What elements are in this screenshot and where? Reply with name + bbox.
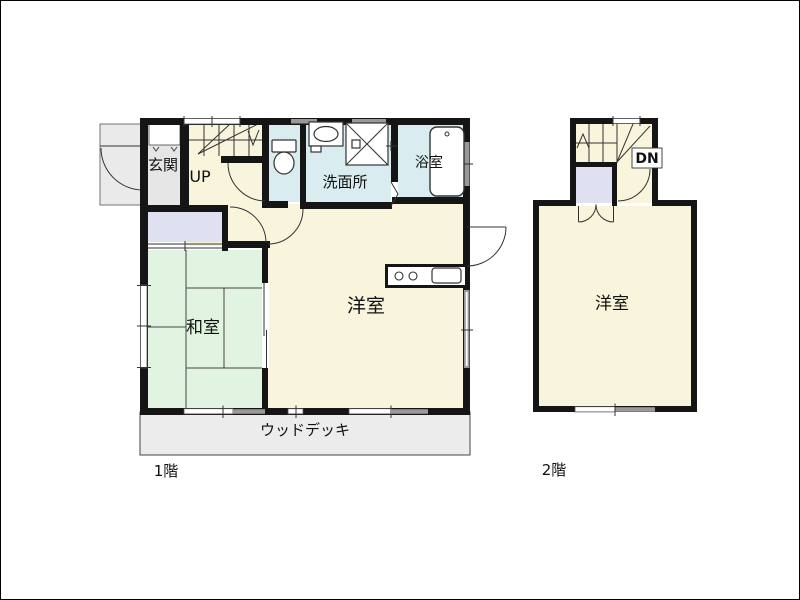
bathroom-label: 浴室 <box>415 154 443 171</box>
stairs-down-label: DN <box>635 151 658 167</box>
floor-plan-image: 玄関 UP 洗面所 浴室 和室 洋室 ウッドデッキ 1階 <box>0 0 800 600</box>
floor1-label: 1階 <box>154 462 179 480</box>
stove-burner <box>395 272 403 280</box>
floor1-plan: 玄関 UP 洗面所 浴室 和室 洋室 ウッドデッキ 1階 <box>100 116 506 480</box>
sliding-partition <box>262 283 269 368</box>
japanese-room-label: 和室 <box>186 318 220 338</box>
stove-burner <box>409 272 417 280</box>
washroom-label: 洗面所 <box>322 173 367 191</box>
wood-deck-label: ウッドデッキ <box>260 421 350 439</box>
entrance-porch <box>100 124 143 205</box>
stairs-up-label: UP <box>189 167 211 186</box>
floor2-label: 2階 <box>542 461 567 479</box>
floor-plan-svg: 玄関 UP 洗面所 浴室 和室 洋室 ウッドデッキ 1階 <box>0 0 800 600</box>
entrance-label: 玄関 <box>148 156 178 174</box>
stairs-down-tag: DN <box>632 148 662 168</box>
closet-2f-floor <box>576 166 612 203</box>
western-room-2f-label: 洋室 <box>595 294 629 314</box>
toilet-fixture <box>272 140 296 174</box>
kitchen-sink <box>432 268 461 283</box>
closet-floor <box>148 211 222 242</box>
western-room-1f-label: 洋室 <box>347 295 385 317</box>
kitchen-counter <box>385 264 468 288</box>
